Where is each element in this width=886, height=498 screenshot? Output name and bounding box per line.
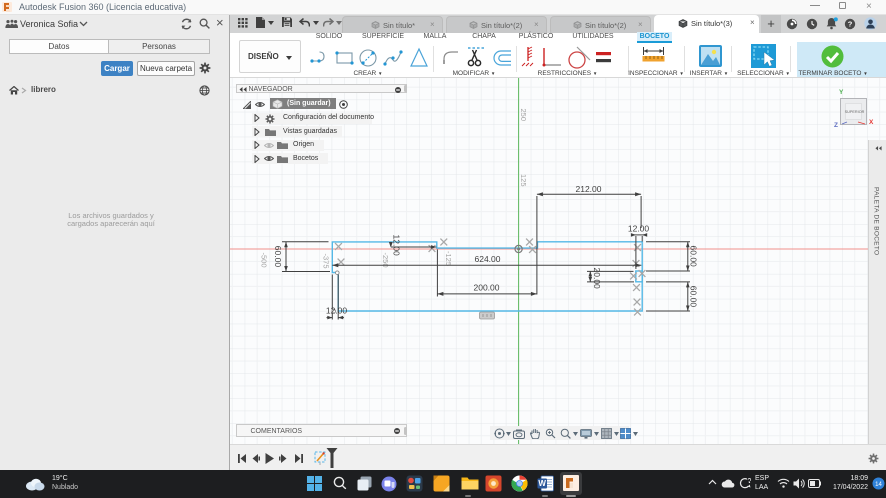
svg-text:60.00: 60.00 <box>689 286 699 308</box>
svg-text:624.00: 624.00 <box>475 254 501 264</box>
svg-text:250: 250 <box>519 109 528 122</box>
svg-text:W: W <box>538 479 546 488</box>
svg-text:-125: -125 <box>444 251 453 266</box>
svg-text:200.00: 200.00 <box>474 283 500 293</box>
svg-text:60.00: 60.00 <box>689 246 699 268</box>
svg-text:20.00: 20.00 <box>592 268 602 290</box>
svg-text:12.00: 12.00 <box>392 235 402 257</box>
svg-text:12.00: 12.00 <box>628 224 650 234</box>
svg-text:-500: -500 <box>260 253 269 268</box>
svg-text:125: 125 <box>519 174 528 187</box>
svg-text:60.00: 60.00 <box>273 246 283 268</box>
svg-text:?: ? <box>848 20 853 29</box>
svg-text:-375: -375 <box>322 254 331 269</box>
svg-text:212.00: 212.00 <box>576 184 602 194</box>
svg-text:14: 14 <box>875 482 882 488</box>
svg-text:12.00: 12.00 <box>326 306 348 316</box>
